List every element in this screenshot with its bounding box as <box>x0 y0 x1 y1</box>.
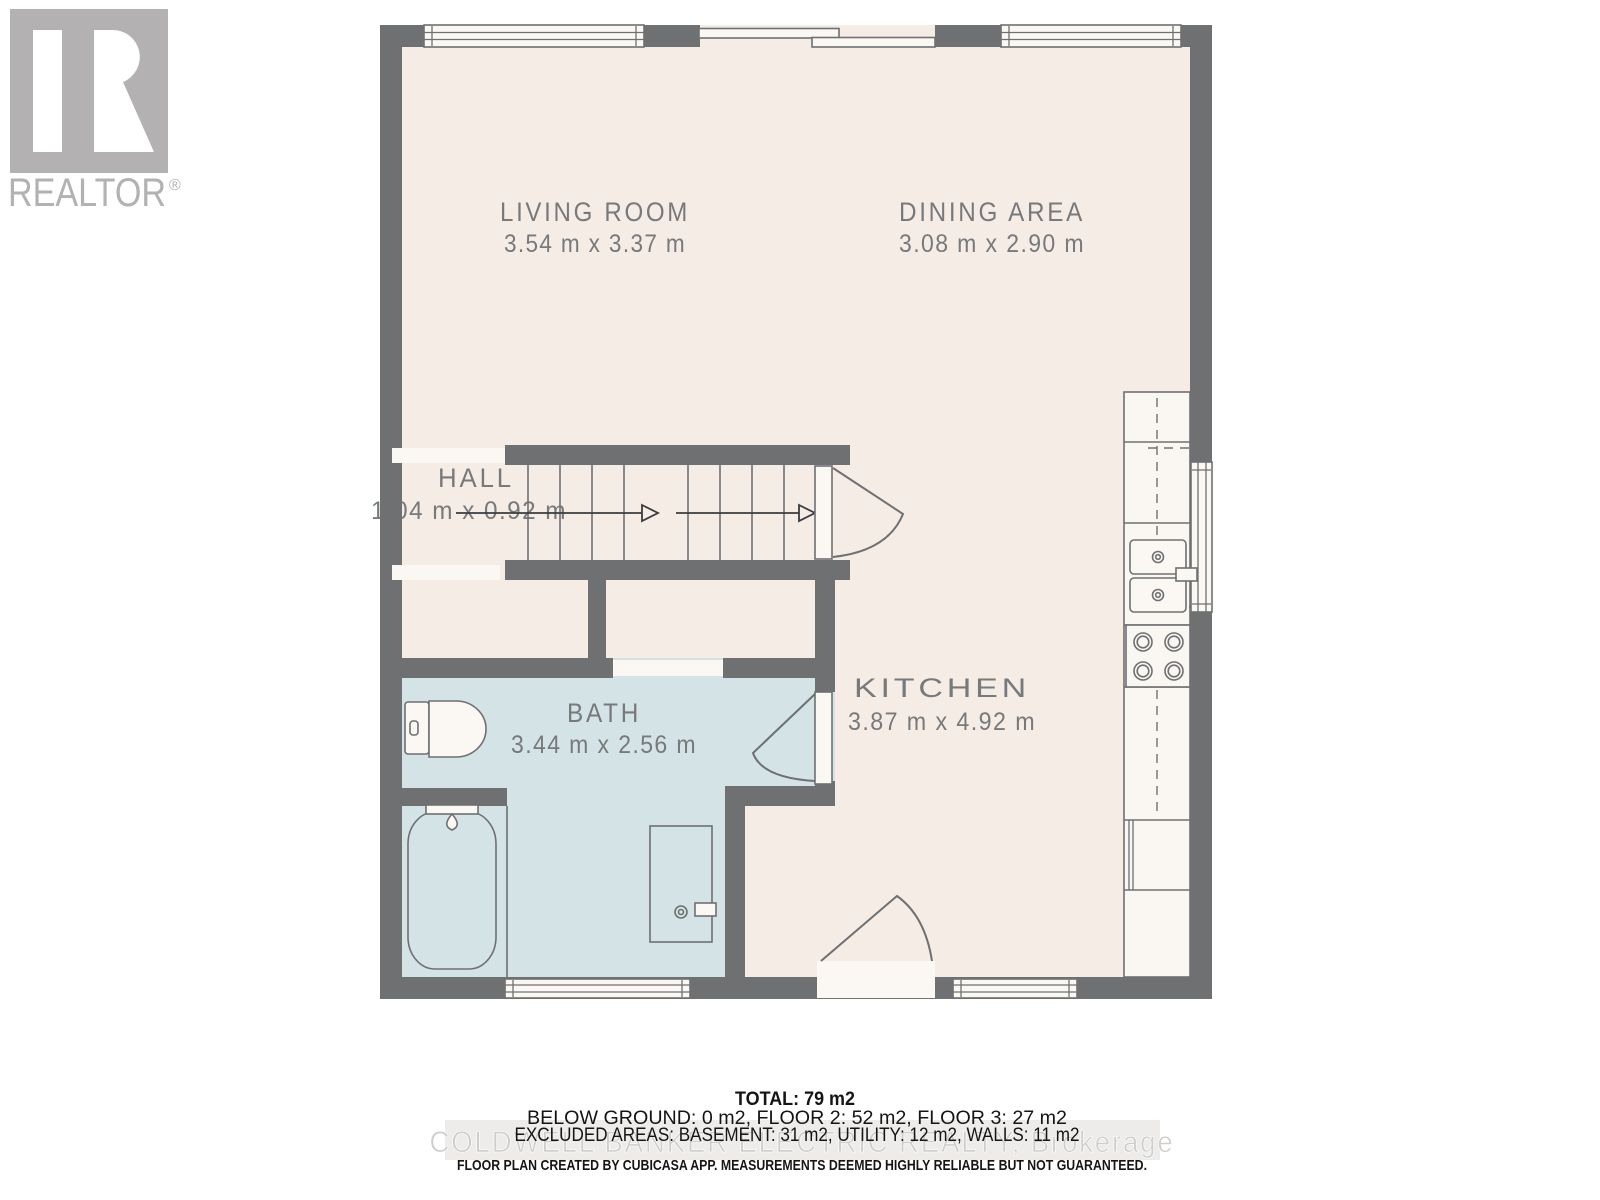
realtor-wordmark: REALTOR <box>8 171 166 215</box>
wall-stairs-top <box>505 445 850 465</box>
window-top-right <box>1001 25 1181 47</box>
opening-hall-bottom <box>392 565 500 580</box>
wall-bath-top-left <box>402 658 613 678</box>
realtor-logo-r-bar <box>33 30 62 152</box>
dining-area-dimensions: 3.08 m x 2.90 m <box>899 230 1085 258</box>
wall-bath-bottom-right <box>725 786 745 977</box>
registered-mark: ® <box>169 177 181 194</box>
window-bath <box>505 979 690 998</box>
kitchen-counter <box>1124 392 1197 977</box>
window-right-wall <box>1191 462 1212 612</box>
wall-toilet-nook <box>402 788 507 806</box>
opening-closet-bath <box>613 660 723 676</box>
window-top-left <box>424 25 644 47</box>
dining-area-label: DINING AREA <box>899 197 1085 227</box>
bath-label: BATH <box>567 698 641 728</box>
summary-total: TOTAL: 79 m2 <box>735 1089 855 1110</box>
sliding-door <box>699 25 935 47</box>
realtor-logo: REALTOR ® <box>8 9 181 215</box>
floor-plan-page: REALTOR ® HALL 1.04 m x 0.92 m <box>0 0 1600 1200</box>
living-room-label: LIVING ROOM <box>500 197 690 227</box>
stove <box>1126 625 1190 687</box>
living-room-dimensions: 3.54 m x 3.37 m <box>504 230 686 258</box>
summary-excluded: EXCLUDED AREAS: BASEMENT: 31 m2, UTILITY… <box>515 1125 1080 1146</box>
wall-bath-top-right <box>723 658 835 678</box>
hall-label: HALL <box>438 463 514 493</box>
kitchen-dimensions: 3.87 m x 4.92 m <box>848 708 1036 736</box>
wall-stairs-bottom <box>505 560 850 580</box>
opening-hall-top <box>392 448 505 463</box>
window-bottom-right <box>953 979 1077 998</box>
wall-left <box>380 25 402 999</box>
footer: COLDWELL BANKER ELECTRIC REALTY, Brokera… <box>430 1089 1175 1174</box>
toilet <box>405 701 486 757</box>
bath-dimensions: 3.44 m x 2.56 m <box>511 731 697 759</box>
kitchen-label: KITCHEN <box>854 673 1030 703</box>
floor-plan: HALL 1.04 m x 0.92 m <box>371 25 1212 999</box>
disclaimer: FLOOR PLAN CREATED BY CUBICASA APP. MEAS… <box>457 1157 1147 1174</box>
